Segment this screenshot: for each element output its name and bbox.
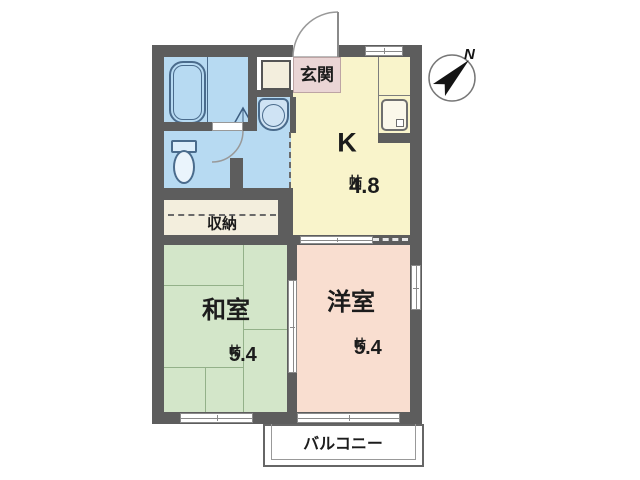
wall (152, 45, 164, 424)
tatami-line (164, 367, 243, 368)
western-room-label: 洋室 (327, 291, 375, 315)
room-western-floor (297, 243, 410, 412)
compass-north-label: N (464, 46, 476, 63)
bathtub-inner-line (173, 65, 202, 120)
hall-kitchen-dashed-line (289, 132, 291, 188)
wall (290, 97, 296, 133)
wall (278, 200, 293, 237)
kitchen-western-dashed-opening (373, 238, 408, 241)
entrance-door-swing-icon (280, 8, 350, 60)
wall (257, 90, 293, 97)
wall (410, 45, 422, 424)
kitchen-label: K (337, 130, 357, 157)
wall (248, 57, 257, 131)
genkan-label: 玄関 (300, 67, 334, 84)
storage-label: 収納 (207, 217, 237, 232)
bathroom-door-swing-icon (205, 125, 250, 170)
tatami-line (164, 285, 243, 286)
japanese-western-sliding-door (288, 280, 297, 373)
kitchen-faucet (396, 119, 404, 127)
kitchen-counter-line (378, 95, 410, 96)
washbasin-bowl (262, 104, 285, 127)
shoe-cabinet-icon (261, 60, 291, 90)
tatami-line (205, 367, 206, 412)
balcony-label: バルコニー (303, 437, 383, 453)
floor-plan: N 玄関 K 4.8帖 収納 和室 5.4帖 洋室 5.4帖 バルコニー (0, 0, 640, 480)
toilet-bowl-icon (173, 150, 195, 184)
bath-divider-line (207, 57, 208, 127)
japanese-room-label: 和室 (202, 299, 250, 323)
wall (378, 133, 410, 143)
western-room-window (411, 265, 421, 310)
tatami-line (243, 329, 287, 330)
wall (164, 188, 293, 200)
kitchen-window (365, 46, 403, 56)
balcony-sliding-door (297, 413, 400, 423)
north-compass: N (422, 45, 486, 109)
japanese-room-window (180, 413, 253, 423)
kitchen-western-sliding-door (300, 236, 373, 244)
